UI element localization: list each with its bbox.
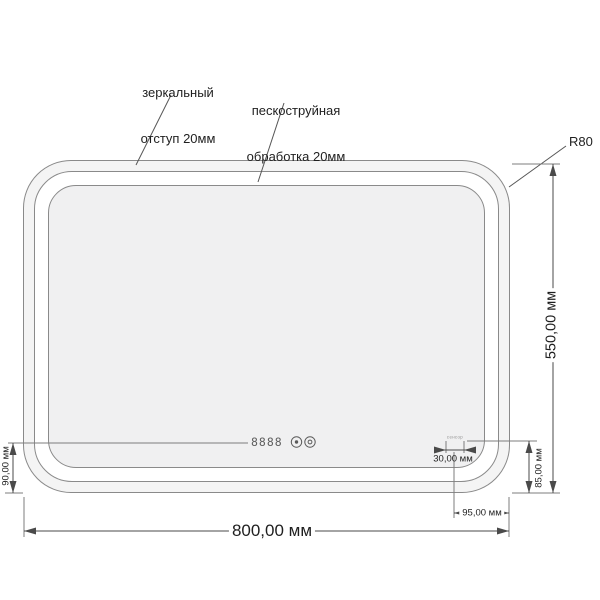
leader-corner-radius (509, 146, 566, 187)
dim-sensor-width: 30,00 мм (433, 453, 472, 464)
dim-display-bottom-offset: 90,00 мм (0, 446, 11, 485)
dim-overall-height: 550,00 мм (543, 288, 560, 362)
mirror-surface (48, 185, 485, 468)
callout-sandblast-line2: обработка 20мм (226, 149, 366, 164)
dim-overall-width: 800,00 мм (229, 521, 315, 541)
arrowhead-right-icon (497, 528, 509, 535)
dim-sensor-right-offset: 95,00 мм (459, 507, 504, 518)
arrowhead-up-icon (550, 164, 557, 176)
technical-drawing-canvas: зеркальный отступ 20мм пескоструйная обр… (0, 0, 600, 600)
arrowhead-up-icon (526, 441, 533, 453)
callout-sandblast-line1: пескоструйная (226, 103, 366, 118)
callout-sandblast: пескоструйная обработка 20мм (226, 72, 366, 195)
dim-sensor-bottom-offset: 85,00 мм (533, 448, 544, 487)
sensor-marking: сенсор (447, 435, 463, 440)
clock-display: 8888 (251, 436, 283, 450)
arrowhead-down-icon (526, 481, 533, 493)
arrowhead-left-icon (24, 528, 36, 535)
callout-corner-radius: R80 (569, 134, 593, 149)
arrowhead-down-icon (550, 481, 557, 493)
